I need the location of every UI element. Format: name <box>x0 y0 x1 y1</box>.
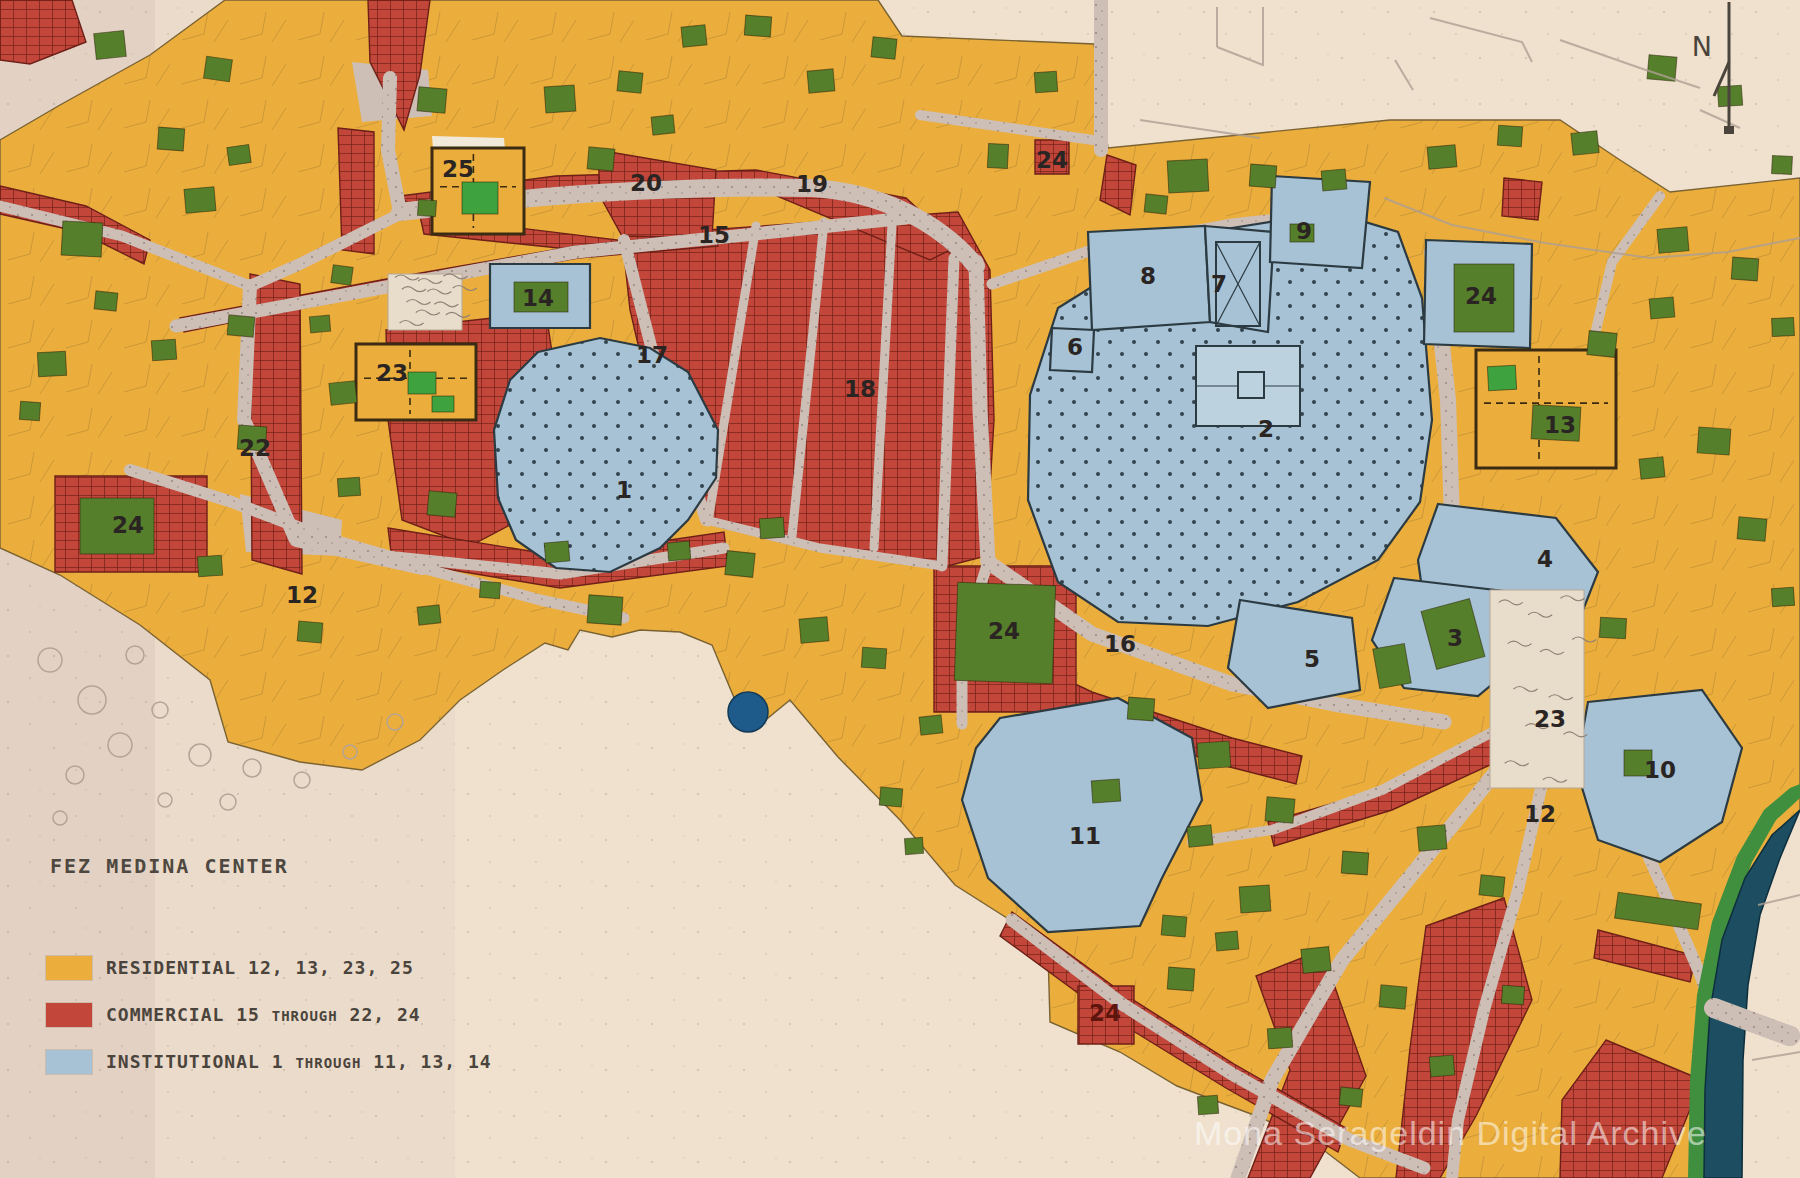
map-number-label: 20 <box>630 170 662 196</box>
map-number-label: 22 <box>239 435 271 461</box>
map-number-label: 4 <box>1537 546 1553 572</box>
map-number-label: 7 <box>1211 271 1227 297</box>
map-number-label: 15 <box>698 222 730 248</box>
map-number-label: 16 <box>1104 631 1136 657</box>
map-number-label: 9 <box>1296 218 1312 244</box>
legend: RESIDENTIAL 12, 13, 23, 25COMMERCIAL 15 … <box>46 944 492 1085</box>
map-number-label: 24 <box>1036 147 1068 173</box>
map-number-label: 19 <box>796 171 828 197</box>
map-title: FEZ MEDINA CENTER <box>50 854 289 878</box>
commercial-swatch <box>46 1003 92 1027</box>
map-number-label: 13 <box>1544 412 1576 438</box>
map-number-label: 24 <box>112 512 144 538</box>
residential-label: RESIDENTIAL 12, 13, 23, 25 <box>106 957 414 978</box>
map-number-label: 8 <box>1140 263 1156 289</box>
map-number-label: 6 <box>1067 334 1083 360</box>
legend-item-commercial: COMMERCIAL 15 THROUGH 22, 24 <box>46 991 492 1038</box>
map-number-label: 24 <box>988 618 1020 644</box>
legend-item-institutional: INSTITUTIONAL 1 THROUGH 11, 13, 14 <box>46 1038 492 1085</box>
fez-medina-map-slide: N252019151417182223122412687924241343516… <box>0 0 1800 1178</box>
pond <box>728 692 768 732</box>
north-label: N <box>1692 31 1712 62</box>
map-number-label: 14 <box>522 285 554 311</box>
watermark: Mona Serageldin Digital Archive <box>1194 1114 1707 1153</box>
commercial-label: COMMERCIAL 15 THROUGH 22, 24 <box>106 1004 421 1025</box>
map-number-label: 12 <box>286 582 318 608</box>
map-number-label: 17 <box>636 342 668 368</box>
residential-swatch <box>46 956 92 980</box>
institutional-label: INSTITUTIONAL 1 THROUGH 11, 13, 14 <box>106 1051 492 1072</box>
map-number-label: 2 <box>1258 416 1274 442</box>
map-number-label: 12 <box>1524 801 1556 827</box>
map-number-label: 18 <box>844 376 876 402</box>
map-number-label: 10 <box>1644 757 1676 783</box>
map-number-label: 24 <box>1089 1000 1121 1026</box>
institutional-swatch <box>46 1050 92 1074</box>
map-number-label: 3 <box>1447 625 1463 651</box>
legend-item-residential: RESIDENTIAL 12, 13, 23, 25 <box>46 944 492 991</box>
map-number-label: 11 <box>1069 823 1101 849</box>
map-number-label: 5 <box>1304 646 1320 672</box>
map-number-label: 23 <box>1534 706 1566 732</box>
map-number-label: 23 <box>376 360 408 386</box>
map-number-label: 25 <box>442 156 474 182</box>
map-number-label: 24 <box>1465 283 1497 309</box>
map-number-label: 1 <box>616 477 632 503</box>
